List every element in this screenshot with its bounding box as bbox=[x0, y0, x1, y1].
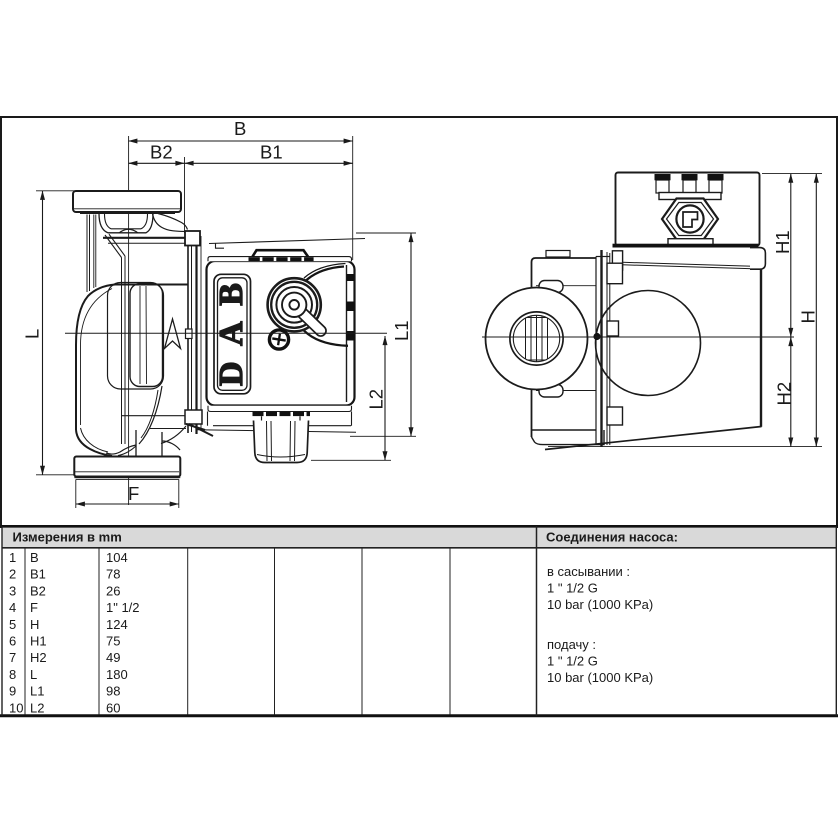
svg-text:8: 8 bbox=[9, 667, 16, 682]
svg-text:L1: L1 bbox=[30, 684, 44, 699]
svg-text:26: 26 bbox=[106, 583, 120, 598]
svg-text:H1: H1 bbox=[772, 230, 793, 254]
svg-text:180: 180 bbox=[106, 667, 128, 682]
svg-text:H: H bbox=[30, 617, 39, 632]
svg-text:1 " 1/2 G: 1 " 1/2 G bbox=[547, 654, 598, 669]
svg-text:H2: H2 bbox=[30, 650, 47, 665]
svg-text:124: 124 bbox=[106, 617, 128, 632]
svg-text:подачу :: подачу : bbox=[547, 637, 596, 652]
svg-text:5: 5 bbox=[9, 617, 16, 632]
svg-text:9: 9 bbox=[9, 684, 16, 699]
svg-text:F: F bbox=[30, 600, 38, 615]
svg-text:10 bar (1000 KPa): 10 bar (1000 KPa) bbox=[547, 670, 653, 685]
svg-text:H2: H2 bbox=[774, 382, 795, 406]
svg-text:98: 98 bbox=[106, 684, 120, 699]
svg-text:1 " 1/2 G: 1 " 1/2 G bbox=[547, 581, 598, 596]
svg-text:10: 10 bbox=[9, 700, 23, 715]
svg-text:B1: B1 bbox=[30, 567, 46, 582]
svg-text:DAB: DAB bbox=[213, 283, 250, 386]
svg-text:3: 3 bbox=[9, 583, 16, 598]
svg-text:49: 49 bbox=[106, 650, 120, 665]
svg-text:L1: L1 bbox=[391, 320, 412, 341]
svg-text:7: 7 bbox=[9, 650, 16, 665]
svg-text:H1: H1 bbox=[30, 634, 47, 649]
svg-text:75: 75 bbox=[106, 634, 120, 649]
svg-text:Соединения насоса:: Соединения насоса: bbox=[546, 530, 678, 545]
svg-text:B: B bbox=[234, 118, 246, 139]
svg-text:Измерения в mm: Измерения в mm bbox=[13, 530, 122, 545]
svg-text:2: 2 bbox=[9, 567, 16, 582]
svg-text:H: H bbox=[798, 310, 819, 323]
svg-text:L: L bbox=[22, 329, 43, 339]
svg-text:F: F bbox=[128, 483, 139, 504]
svg-text:104: 104 bbox=[106, 550, 128, 565]
svg-text:1: 1 bbox=[9, 550, 16, 565]
svg-text:B2: B2 bbox=[150, 142, 173, 163]
svg-text:4: 4 bbox=[9, 600, 16, 615]
svg-text:B1: B1 bbox=[260, 142, 283, 163]
svg-text:в сасывании :: в сасывании : bbox=[547, 564, 630, 579]
svg-text:6: 6 bbox=[9, 634, 16, 649]
svg-text:L2: L2 bbox=[366, 389, 387, 410]
svg-text:L: L bbox=[30, 667, 37, 682]
svg-text:1" 1/2: 1" 1/2 bbox=[106, 600, 140, 615]
svg-text:B2: B2 bbox=[30, 583, 46, 598]
svg-text:L2: L2 bbox=[30, 700, 44, 715]
svg-text:78: 78 bbox=[106, 567, 120, 582]
svg-text:60: 60 bbox=[106, 700, 120, 715]
svg-text:10 bar (1000 KPa): 10 bar (1000 KPa) bbox=[547, 597, 653, 612]
svg-text:B: B bbox=[30, 550, 39, 565]
